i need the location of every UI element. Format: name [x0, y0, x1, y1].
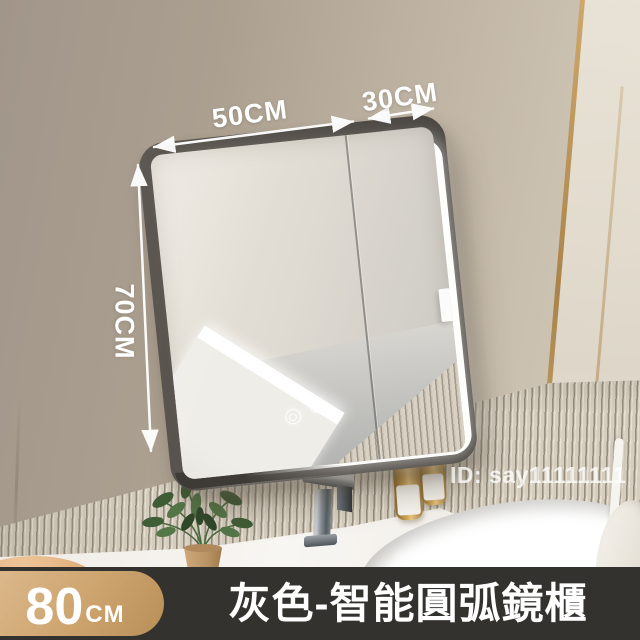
dimension-label-width: 50CM	[210, 94, 289, 135]
dimension-label-height: 70CM	[109, 284, 140, 356]
mirror-doors	[150, 126, 467, 480]
product-title: 灰色-智能圓弧鏡櫃	[182, 567, 634, 640]
product-photo: 50CM 30CM 70CM ID: say11111111 80 CM 灰色-…	[0, 0, 640, 640]
size-badge-value: 80	[25, 586, 83, 629]
mirror-reflection-counter	[150, 327, 343, 480]
mirror-door-seam	[345, 135, 381, 459]
mirror-reflection-slats	[326, 353, 466, 464]
size-badge: 80 CM	[0, 571, 164, 636]
seller-id-watermark: ID: say11111111	[450, 462, 626, 489]
bottle-label	[422, 473, 445, 500]
bottle-label	[396, 484, 421, 516]
faucet-tip	[337, 485, 352, 512]
mirror-cabinet	[137, 113, 480, 493]
power-icon	[309, 396, 325, 412]
defog-icon	[285, 409, 301, 425]
size-badge-unit: CM	[85, 601, 124, 629]
dimension-label-door-width: 30CM	[360, 77, 440, 118]
